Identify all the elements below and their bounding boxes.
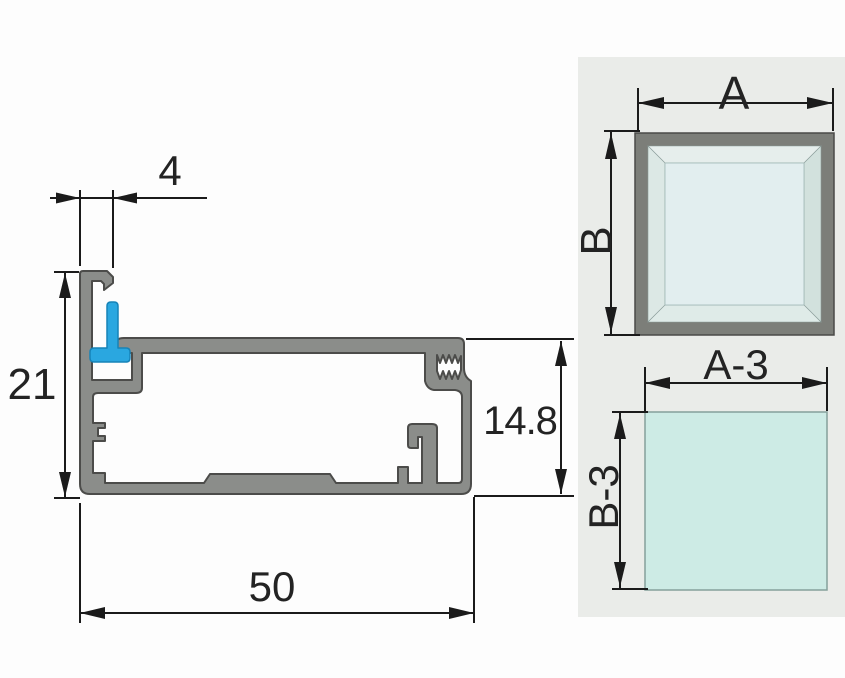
dim-label-frame-width: A (719, 70, 750, 116)
glass-sheet-diagram (645, 412, 827, 590)
dim-label-left-height: 21 (8, 363, 57, 407)
frame-bevel-left (648, 146, 665, 322)
dim-label-right-height: 14.8 (483, 401, 557, 441)
dim-label-glass-height: B-3 (583, 464, 625, 529)
gasket-clip (90, 302, 130, 362)
dim-label-glass-width: A-3 (703, 344, 768, 386)
dim-label-frame-height: B (575, 226, 619, 255)
dim-label-top-width: 4 (158, 150, 181, 192)
frame-bevel-bottom (648, 305, 821, 322)
frame-bevel-right (804, 146, 821, 322)
frame-glass-pane (665, 163, 804, 305)
profile-cross-section (80, 271, 471, 494)
glazing-frame-diagram (635, 133, 834, 335)
dim-label-bottom-width: 50 (249, 566, 296, 608)
technical-drawing-canvas: 4 21 14.8 50 A B A-3 B-3 (0, 0, 845, 678)
frame-bevel-top (648, 146, 821, 163)
